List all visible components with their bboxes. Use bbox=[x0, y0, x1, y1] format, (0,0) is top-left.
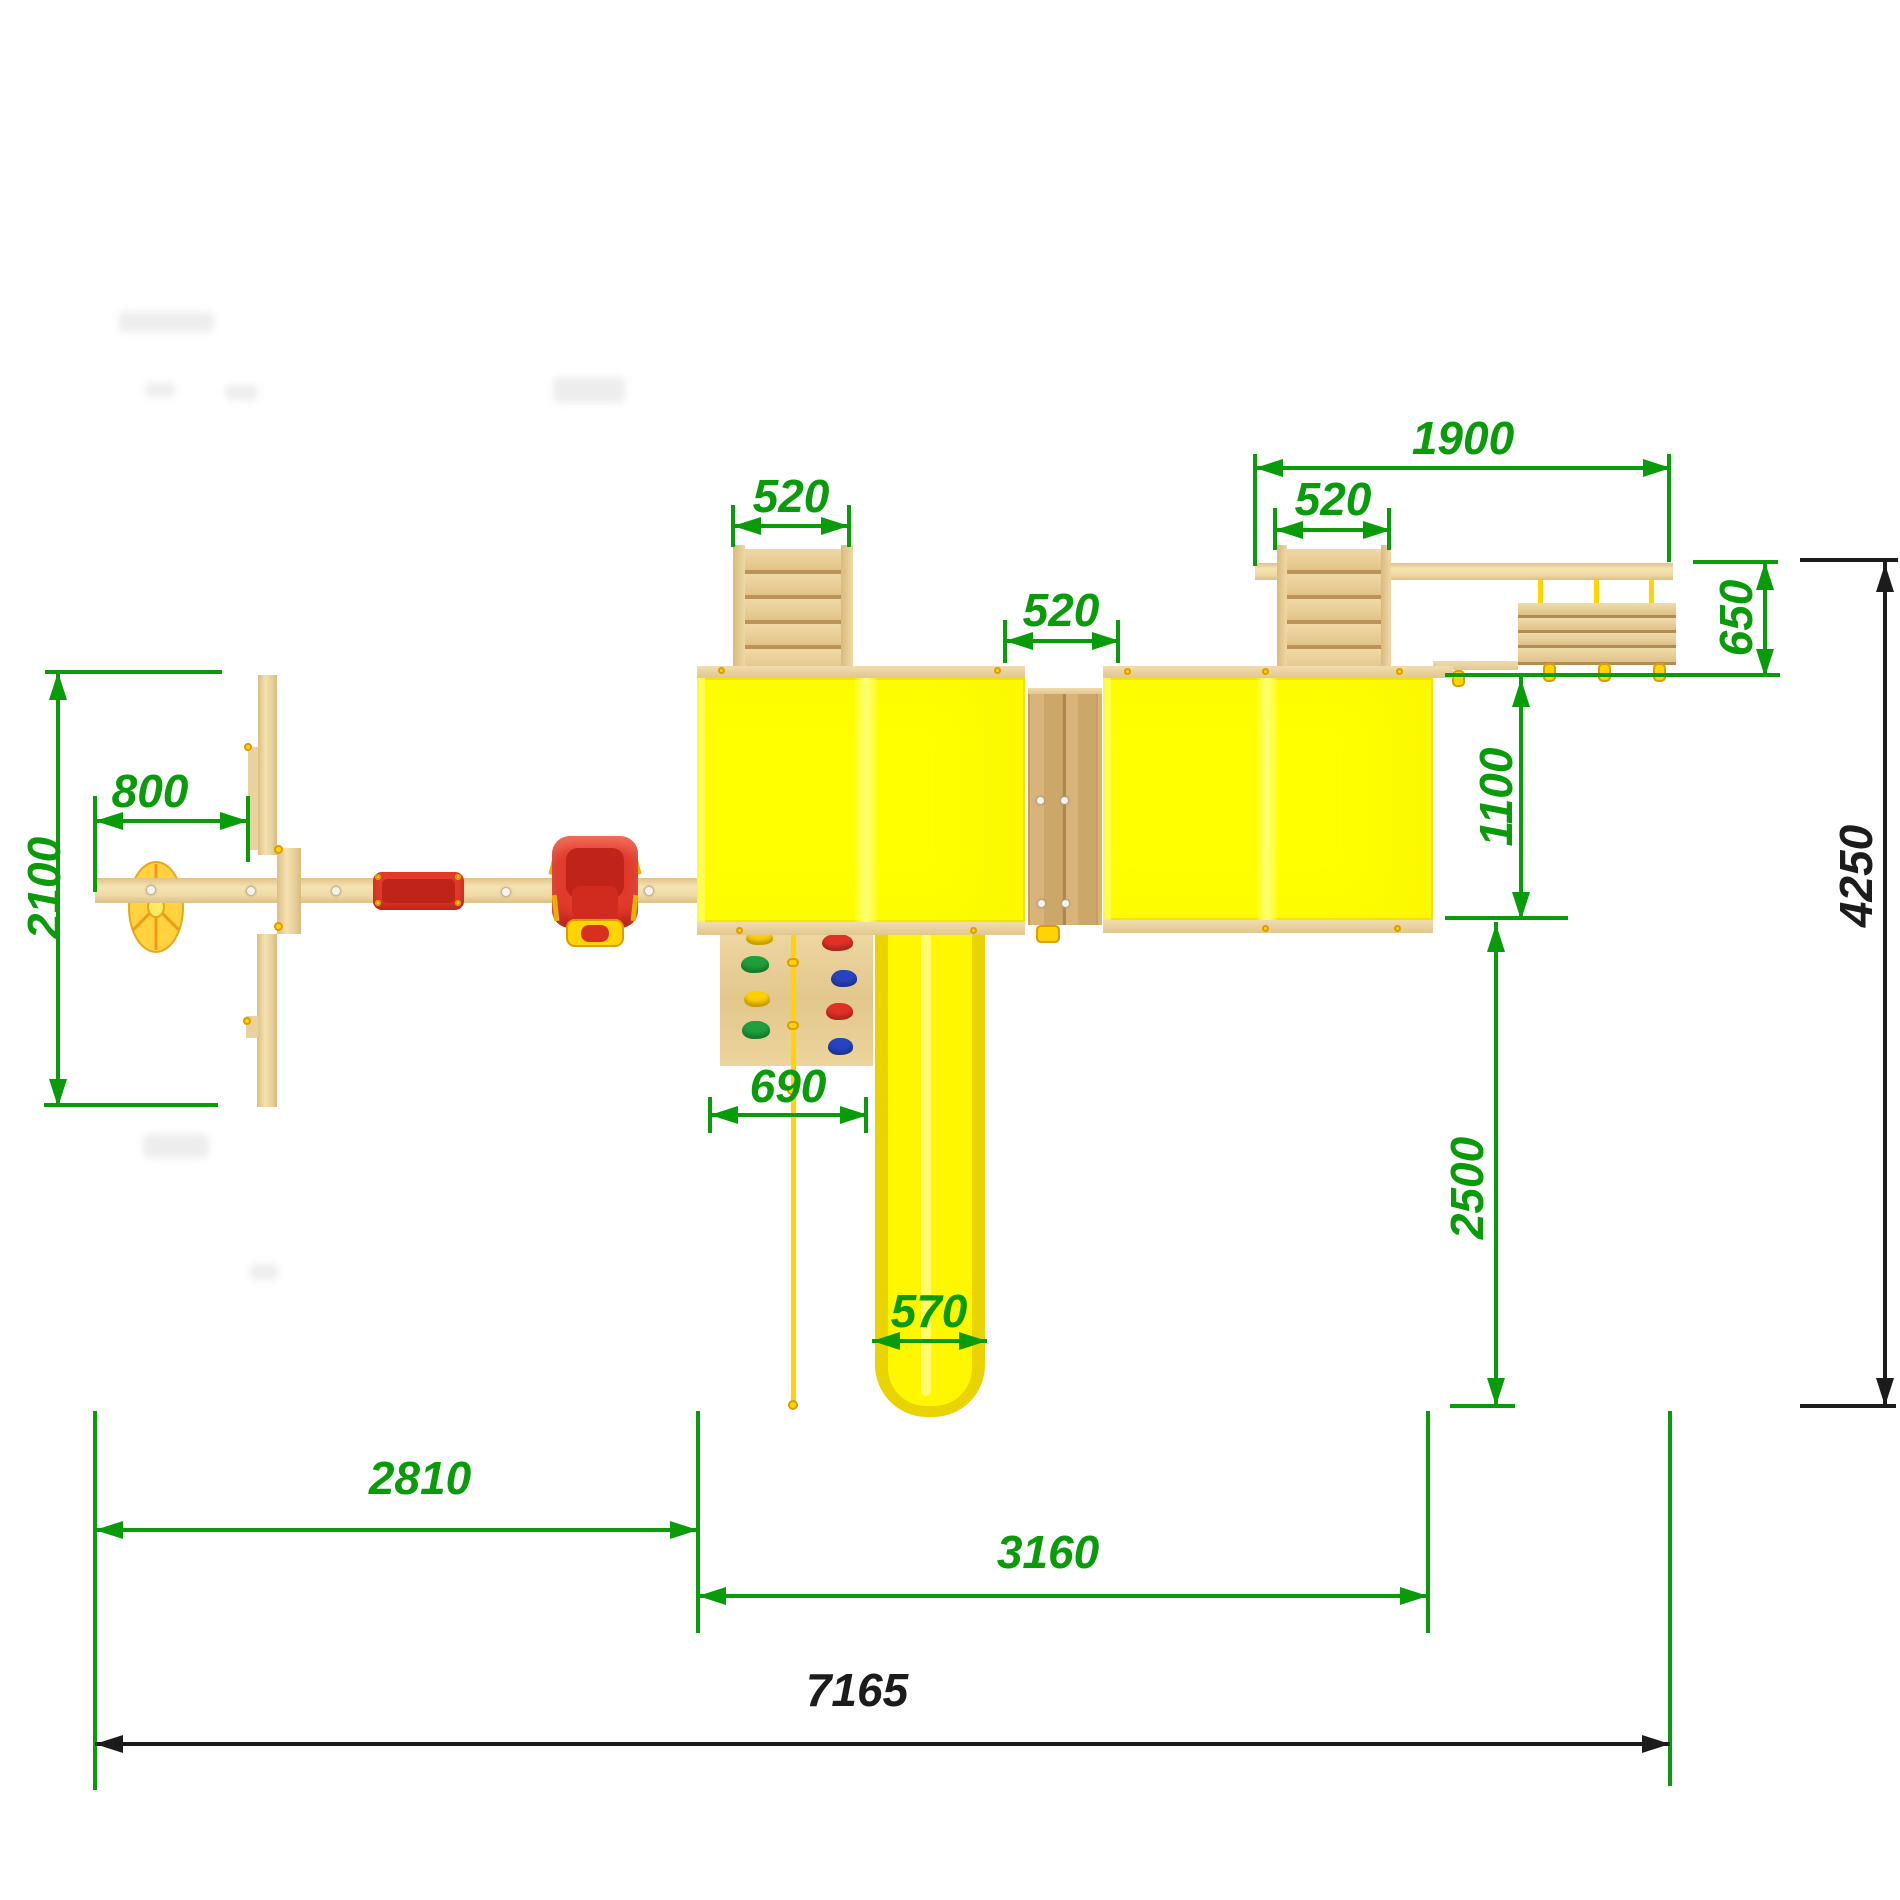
bridge-hook bbox=[1036, 925, 1060, 943]
seat-hook bbox=[455, 900, 461, 906]
tower-left-roof-stripe bbox=[855, 678, 877, 922]
bridge-gap-line bbox=[1063, 692, 1066, 925]
tower-right-roof-edge bbox=[1103, 678, 1111, 920]
smudge-mark bbox=[250, 1264, 278, 1280]
dim-arrow bbox=[1487, 1378, 1505, 1406]
dim-ext-line bbox=[1445, 673, 1780, 677]
beam-bolt bbox=[147, 886, 155, 894]
net-slat bbox=[1518, 633, 1676, 648]
dim-label-520: 520 bbox=[1023, 587, 1100, 633]
dim-ext-line bbox=[45, 670, 222, 674]
deck-dot bbox=[1124, 668, 1131, 675]
rope-end bbox=[788, 1400, 798, 1410]
ladder-rung bbox=[745, 599, 841, 624]
deck-dot bbox=[736, 927, 743, 934]
dim-arrow bbox=[1400, 1587, 1428, 1605]
ladder-rung bbox=[745, 549, 841, 574]
tower-right-roof-stripe bbox=[1257, 678, 1277, 920]
dim-arrow bbox=[1876, 564, 1894, 592]
ladder-rail bbox=[733, 545, 745, 676]
seat-hook bbox=[375, 900, 381, 906]
dim-arrow bbox=[220, 812, 248, 830]
ladder-rail bbox=[1277, 545, 1287, 671]
dim-arrow bbox=[1643, 459, 1671, 477]
net-rope bbox=[1538, 580, 1543, 605]
dim-label-4250: 4250 bbox=[1833, 825, 1879, 927]
seesaw-lower-plank bbox=[257, 934, 277, 1107]
dim-arrow bbox=[1487, 924, 1505, 952]
dim-label-1100: 1100 bbox=[1473, 748, 1519, 847]
dim-ext-line bbox=[93, 796, 97, 892]
ladder-rung bbox=[745, 574, 841, 599]
net-rope bbox=[1649, 580, 1654, 605]
beam-bolt bbox=[502, 888, 510, 896]
dim-line bbox=[95, 1528, 698, 1532]
smudge-mark bbox=[143, 1134, 209, 1158]
dim-label-570: 570 bbox=[891, 1288, 968, 1334]
fastener-dot bbox=[274, 845, 283, 854]
dim-label-2100: 2100 bbox=[21, 837, 67, 939]
climbing-rope bbox=[791, 930, 796, 1408]
dim-label-2500: 2500 bbox=[1444, 1137, 1490, 1239]
fastener-dot bbox=[274, 922, 283, 931]
dim-ext-line bbox=[1445, 916, 1568, 920]
deck-dot bbox=[994, 667, 1001, 674]
dim-arrow bbox=[698, 1587, 726, 1605]
deck-dot bbox=[1262, 925, 1269, 932]
dim-line bbox=[1883, 562, 1887, 1406]
flat-seat-panel bbox=[382, 879, 455, 903]
dim-ext-line bbox=[1450, 1404, 1515, 1408]
dim-label-1900: 1900 bbox=[1412, 415, 1514, 461]
dim-arrow bbox=[49, 672, 67, 700]
dim-line bbox=[698, 1594, 1428, 1598]
seat-hook bbox=[375, 874, 381, 880]
ladder-rung bbox=[1287, 574, 1381, 599]
smudge-mark bbox=[118, 312, 214, 332]
dim-line bbox=[1255, 466, 1671, 470]
net-slat bbox=[1518, 618, 1676, 633]
dim-arrow bbox=[710, 1106, 738, 1124]
seat-hook bbox=[455, 874, 461, 880]
dim-arrow bbox=[95, 1521, 123, 1539]
dim-arrow bbox=[1512, 679, 1530, 707]
rope-knot bbox=[787, 1021, 799, 1030]
climb-hold-blue bbox=[831, 970, 857, 987]
dim-label-690: 690 bbox=[750, 1063, 827, 1109]
net-slat bbox=[1518, 648, 1676, 665]
playground-plan-canvas: 800 2100 520 520 520 bbox=[0, 0, 1900, 1900]
beam-bolt bbox=[332, 887, 340, 895]
dim-ext-line bbox=[93, 1411, 97, 1790]
climb-hold-red bbox=[826, 1003, 853, 1020]
smudge-mark bbox=[145, 383, 175, 397]
dim-arrow bbox=[1255, 459, 1283, 477]
fastener-dot bbox=[244, 743, 252, 751]
bridge-bolt bbox=[1061, 797, 1068, 804]
tower-left-deck-top bbox=[697, 666, 1025, 678]
dim-label-2810: 2810 bbox=[369, 1455, 471, 1501]
bridge-bolt bbox=[1062, 900, 1069, 907]
dim-label-650: 650 bbox=[1713, 580, 1759, 657]
net-slat bbox=[1518, 603, 1676, 618]
ladder-rail bbox=[1381, 545, 1391, 671]
dim-ext-line bbox=[1668, 1411, 1672, 1786]
bridge-cap bbox=[1028, 688, 1102, 694]
ladder-rung bbox=[1287, 599, 1381, 624]
beam-bolt bbox=[247, 887, 255, 895]
baby-swing-base-pad bbox=[581, 925, 609, 942]
seesaw-upper-plank bbox=[258, 675, 277, 855]
dim-arrow bbox=[1642, 1735, 1670, 1753]
dim-arrow bbox=[840, 1106, 868, 1124]
smudge-mark bbox=[553, 377, 625, 403]
dim-label-7165: 7165 bbox=[806, 1667, 908, 1713]
ladder-rung bbox=[1287, 624, 1381, 649]
carousel-disc-icon bbox=[126, 859, 186, 955]
smudge-mark bbox=[225, 385, 258, 400]
seesaw-pivot-block bbox=[277, 848, 301, 934]
deck-dot bbox=[1394, 925, 1401, 932]
dim-arrow bbox=[1876, 1378, 1894, 1406]
fastener-dot bbox=[243, 1017, 251, 1025]
dim-label-520: 520 bbox=[1295, 476, 1372, 522]
ladder-rung bbox=[1287, 549, 1381, 574]
dim-line bbox=[95, 1742, 1670, 1746]
rope-knot bbox=[787, 958, 799, 967]
deck-dot bbox=[1262, 668, 1269, 675]
deck-dot bbox=[970, 927, 977, 934]
climb-hold-green bbox=[742, 1021, 770, 1039]
bridge-bolt bbox=[1038, 900, 1045, 907]
dim-label-520: 520 bbox=[753, 473, 830, 519]
ladder-rail bbox=[841, 545, 853, 676]
baby-swing-seat-pan bbox=[572, 886, 618, 918]
climb-hold-yellow bbox=[744, 991, 770, 1007]
dim-arrow bbox=[670, 1521, 698, 1539]
climb-hold-green bbox=[741, 956, 769, 973]
ladder-rung bbox=[745, 624, 841, 649]
beam-bolt bbox=[645, 887, 653, 895]
bridge-bolt bbox=[1037, 797, 1044, 804]
deck-dot bbox=[1396, 668, 1403, 675]
dim-ext-line bbox=[44, 1103, 218, 1107]
net-rope bbox=[1594, 580, 1599, 605]
dim-arrow bbox=[95, 1735, 123, 1753]
deck-dot bbox=[718, 667, 725, 674]
climb-hold-red bbox=[822, 934, 853, 951]
dim-arrow bbox=[49, 1079, 67, 1107]
dim-label-3160: 3160 bbox=[997, 1529, 1099, 1575]
dim-label-800: 800 bbox=[112, 768, 189, 814]
climb-hold-blue bbox=[828, 1038, 853, 1055]
dim-line bbox=[1494, 922, 1498, 1406]
tower-left-roof-edge bbox=[697, 678, 705, 922]
